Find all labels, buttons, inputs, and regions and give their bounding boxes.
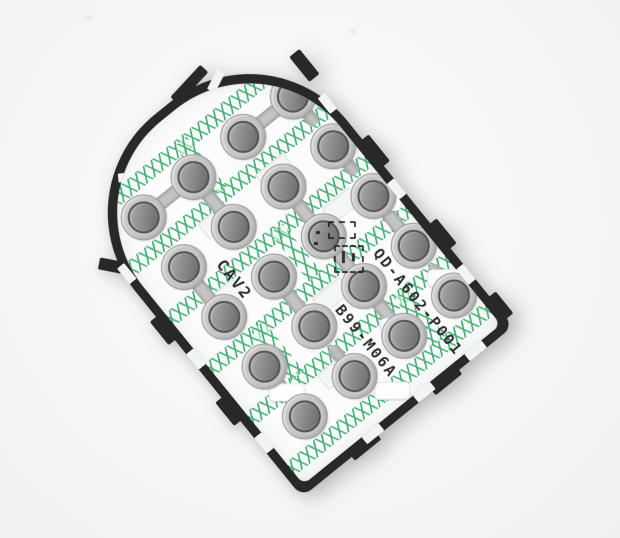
fiducial-segment (342, 251, 345, 263)
dust-speck (86, 16, 91, 19)
fiducial-segment (352, 253, 355, 261)
alignment-fiducial (312, 215, 372, 277)
membrane-frame: CAV2 QD-A602-P001 B99-M06A (57, 23, 514, 497)
fiducial-dot (316, 231, 320, 234)
membrane-substrate: CAV2 QD-A602-P001 B99-M06A (69, 36, 501, 485)
fiducial-dash-rect (334, 245, 364, 273)
dust-speck (350, 30, 356, 33)
photo-canvas: CAV2 QD-A602-P001 B99-M06A (0, 0, 620, 538)
fiducial-dot (314, 242, 318, 245)
keypad-membrane: CAV2 QD-A602-P001 B99-M06A (57, 23, 514, 497)
adhesive-patch (374, 381, 410, 400)
fiducial-dash-rect (328, 221, 356, 239)
